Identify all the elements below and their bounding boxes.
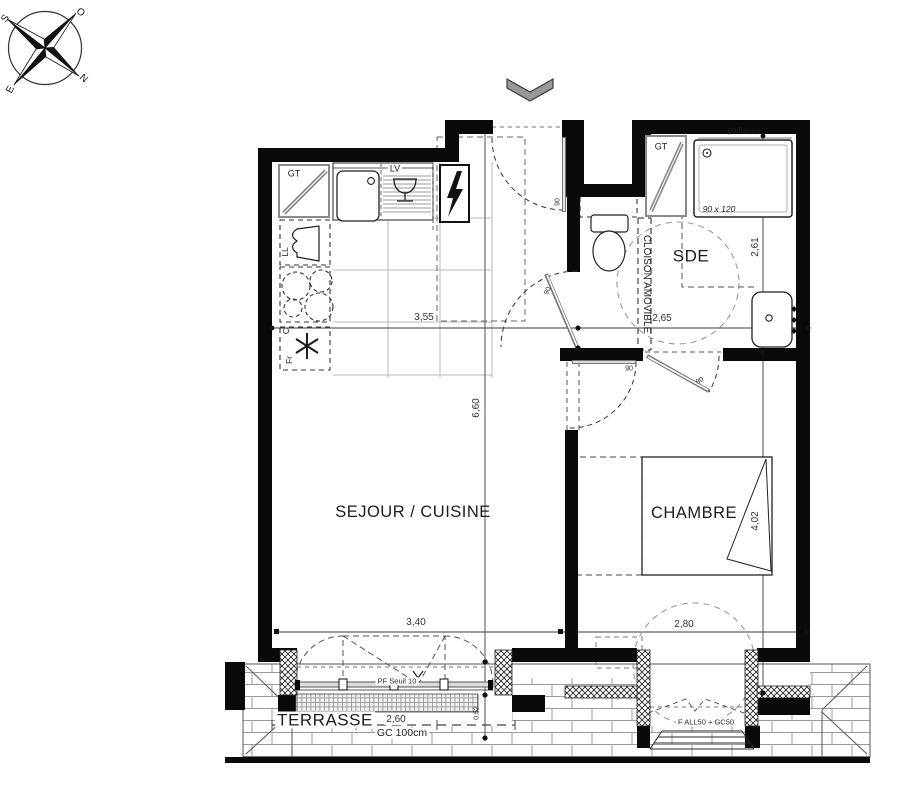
dim-sde-depth: 2,61 [751,237,761,256]
cloison-amovible-label: CLOISON AMOVIBLE [641,235,651,333]
floor-plan-drawing [0,0,900,800]
door-width-entry: 90 [555,198,562,206]
sde-gt-label: GT [655,143,668,152]
washbasin [752,292,797,347]
paillasse-label: paillasse [727,126,760,135]
kitchen-duct-gt [279,165,329,217]
dim-chambre-width: 2,80 [674,620,693,630]
sink-dishwasher-unit [333,163,433,230]
cooktop-label: C [282,328,291,334]
room-label-sde: SDE [673,248,709,265]
dim-terrasse-width: 2,60 [384,715,407,725]
room-label-chambre: CHAMBRE [651,505,737,522]
compass-rose [7,12,82,86]
electrical-panel [440,165,469,222]
gc-label: GC 100cm [375,728,429,739]
door-width-chambre: 90 [625,366,633,373]
shower-size-label: 90 x 120 [703,205,736,214]
sde-door-arc [501,271,577,347]
entry-door-arc [492,138,564,210]
terrace-outer-edge [225,757,870,763]
entry-duct-niche [584,120,632,184]
toilet [591,215,628,271]
room-label-terrasse: TERRASSE [275,712,375,729]
room-label-sejour-cuisine: SEJOUR / CUISINE [335,504,491,521]
entrance-chevron-icon [507,79,553,101]
dim-kitchen-width: 3,55 [414,313,433,323]
fridge-snowflake-icon [296,333,318,359]
gutter-grate [296,694,478,712]
dim-chambre-length: 4,02 [751,511,761,530]
fridge-label: Fr [285,356,294,364]
dishwasher-label: LV [388,165,402,174]
kitchen-gt-label: GT [288,170,301,179]
washer-symbol [293,226,320,261]
turning-circle-sde [617,222,739,344]
dim-terrasse-edge: 0,52 [474,706,481,720]
floorplan-page: S O N E SEJOUR / CUISINE CHAMBRE SDE TER… [0,0,900,800]
pf-seuil-label: PF Seuil 10 [376,677,419,685]
dim-sejour-width: 3,40 [406,618,425,628]
dim-sde-width: 2,65 [652,314,671,324]
washer-label: LL [281,247,290,256]
sde-chambre-door-arc [709,356,719,392]
cooktop-burners [282,270,333,321]
f-all-label: F ALL50 + GC50 [676,718,736,726]
dim-sejour-length: 6,60 [472,398,482,417]
fixtures [279,136,797,690]
